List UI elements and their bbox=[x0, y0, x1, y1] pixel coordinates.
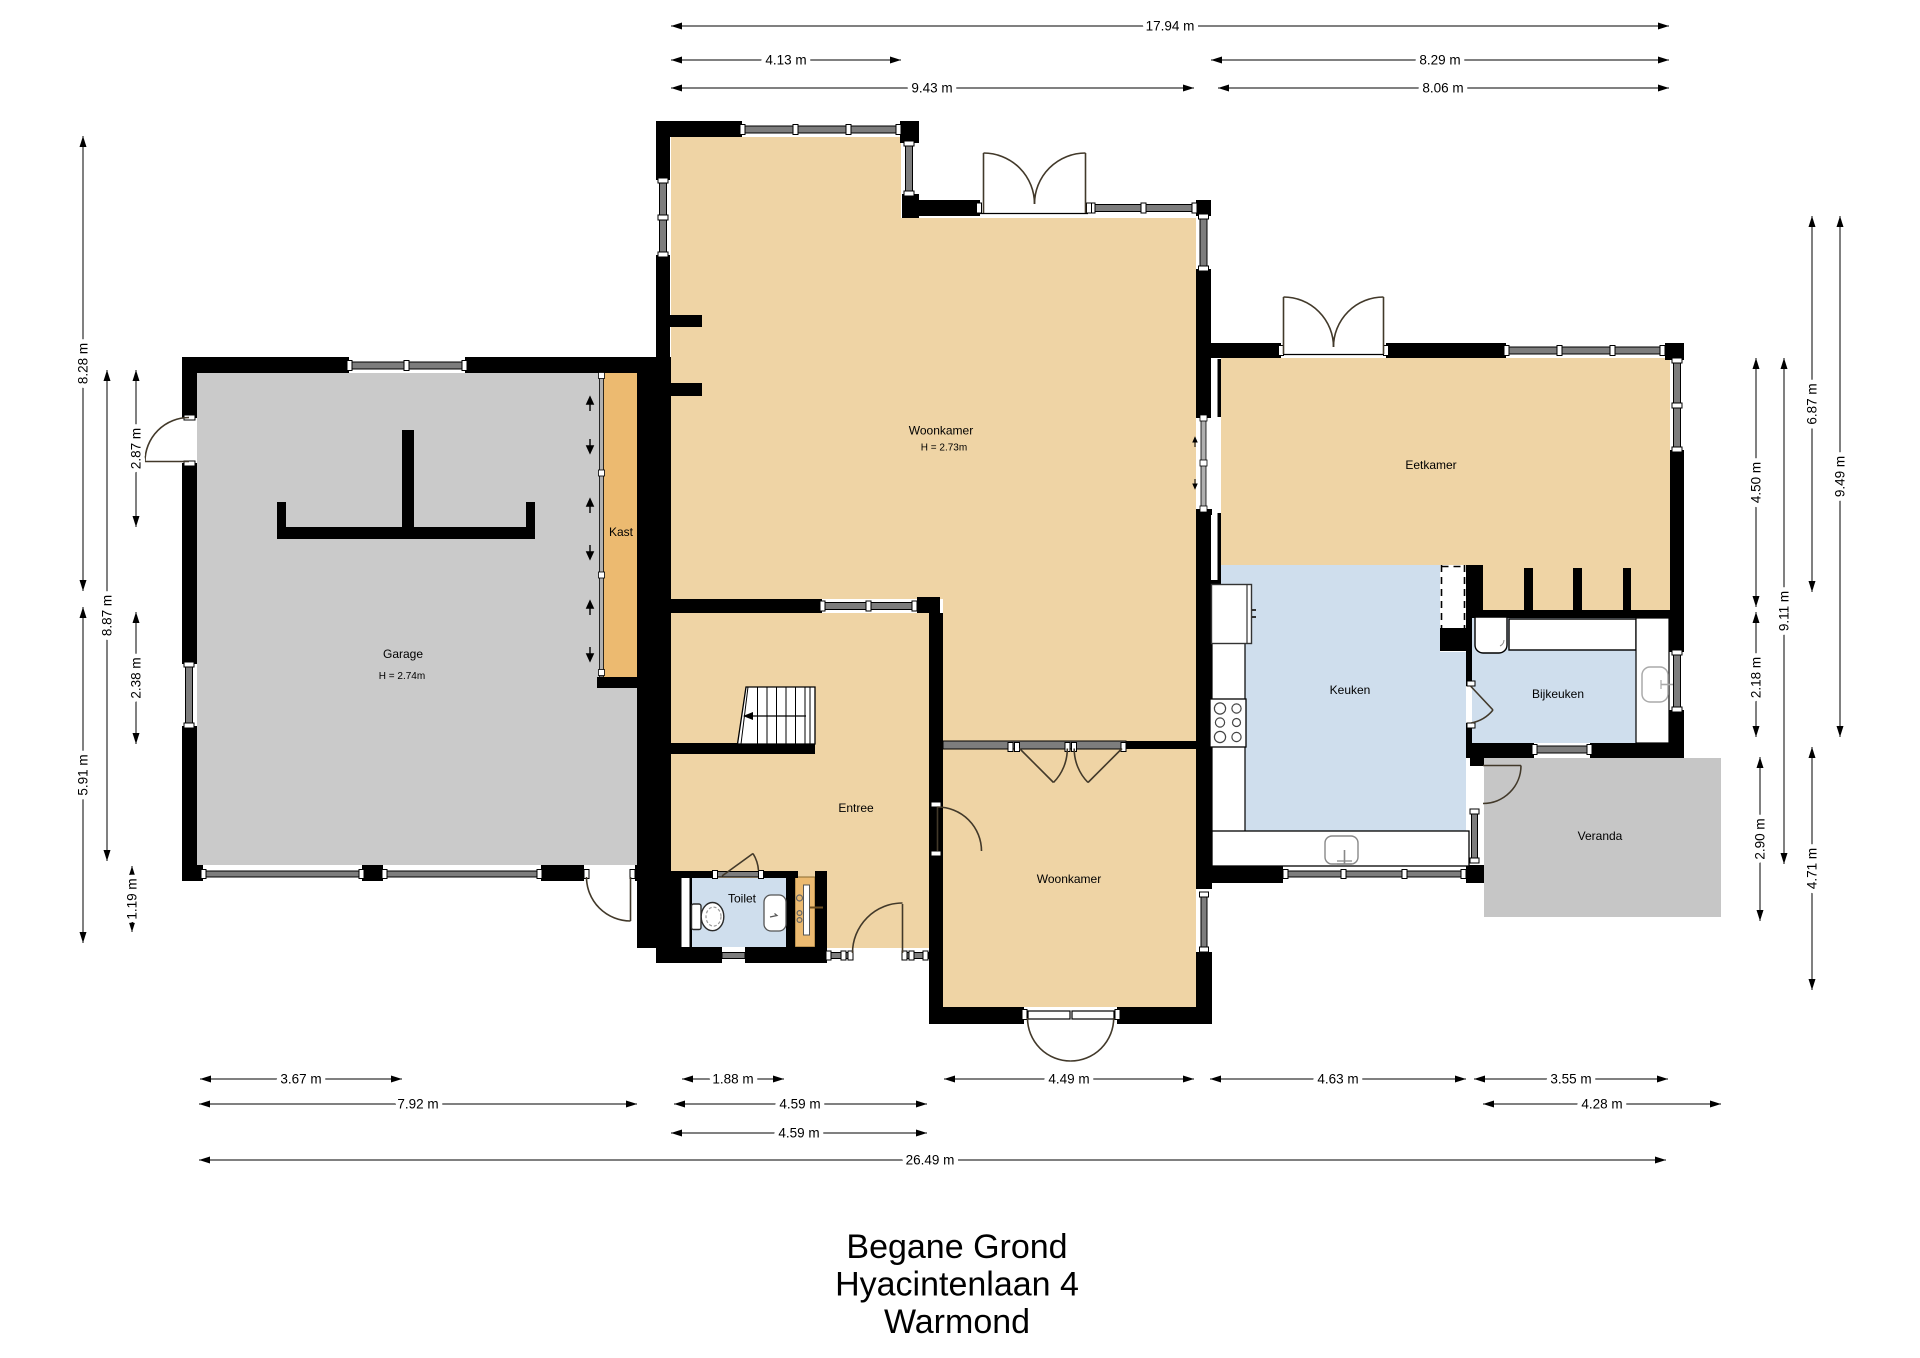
svg-text:9.43 m: 9.43 m bbox=[911, 81, 952, 96]
svg-text:4.28 m: 4.28 m bbox=[1581, 1097, 1622, 1112]
svg-text:Toilet: Toilet bbox=[728, 892, 757, 906]
svg-text:8.06 m: 8.06 m bbox=[1422, 81, 1463, 96]
svg-text:Entree: Entree bbox=[838, 801, 874, 815]
svg-text:4.63 m: 4.63 m bbox=[1317, 1072, 1358, 1087]
svg-text:8.29 m: 8.29 m bbox=[1419, 53, 1460, 68]
svg-text:9.11 m: 9.11 m bbox=[1777, 591, 1792, 631]
svg-text:8.87 m: 8.87 m bbox=[100, 595, 115, 636]
svg-text:5.91 m: 5.91 m bbox=[76, 754, 91, 795]
svg-text:H = 2.73m: H = 2.73m bbox=[921, 443, 967, 454]
svg-text:2.18 m: 2.18 m bbox=[1749, 657, 1764, 698]
svg-text:26.49 m: 26.49 m bbox=[906, 1153, 955, 1168]
svg-text:4.49 m: 4.49 m bbox=[1048, 1072, 1089, 1087]
svg-text:3.67 m: 3.67 m bbox=[280, 1072, 321, 1087]
svg-text:Bijkeuken: Bijkeuken bbox=[1532, 687, 1584, 701]
svg-text:1.88 m: 1.88 m bbox=[712, 1072, 753, 1087]
svg-text:3.55 m: 3.55 m bbox=[1550, 1072, 1591, 1087]
svg-text:4.13 m: 4.13 m bbox=[765, 53, 806, 68]
svg-text:2.38 m: 2.38 m bbox=[129, 657, 144, 698]
svg-text:Hyacintenlaan 4: Hyacintenlaan 4 bbox=[835, 1266, 1079, 1304]
svg-text:Garage: Garage bbox=[383, 647, 423, 661]
svg-text:Veranda: Veranda bbox=[1578, 829, 1623, 843]
svg-text:2.87 m: 2.87 m bbox=[129, 428, 144, 469]
svg-text:Eetkamer: Eetkamer bbox=[1405, 458, 1456, 472]
svg-text:6.87 m: 6.87 m bbox=[1805, 383, 1820, 424]
svg-text:2.90 m: 2.90 m bbox=[1753, 818, 1768, 859]
svg-text:Woonkamer: Woonkamer bbox=[1037, 872, 1101, 886]
svg-text:H = 2.74m: H = 2.74m bbox=[379, 671, 425, 682]
svg-text:1.19 m: 1.19 m bbox=[125, 878, 140, 919]
svg-text:Kast: Kast bbox=[609, 525, 634, 539]
svg-text:Keuken: Keuken bbox=[1330, 683, 1371, 697]
svg-text:17.94 m: 17.94 m bbox=[1146, 19, 1195, 34]
svg-text:Woonkamer: Woonkamer bbox=[909, 424, 973, 438]
svg-text:8.28 m: 8.28 m bbox=[76, 343, 91, 384]
svg-text:4.59 m: 4.59 m bbox=[779, 1097, 820, 1112]
svg-text:4.50 m: 4.50 m bbox=[1749, 462, 1764, 503]
svg-text:4.59 m: 4.59 m bbox=[778, 1126, 819, 1141]
svg-text:Begane Grond: Begane Grond bbox=[846, 1228, 1067, 1266]
svg-text:4.71 m: 4.71 m bbox=[1805, 848, 1820, 889]
svg-text:7.92 m: 7.92 m bbox=[397, 1097, 438, 1112]
svg-text:9.49 m: 9.49 m bbox=[1833, 456, 1848, 497]
svg-text:Warmond: Warmond bbox=[884, 1303, 1030, 1341]
